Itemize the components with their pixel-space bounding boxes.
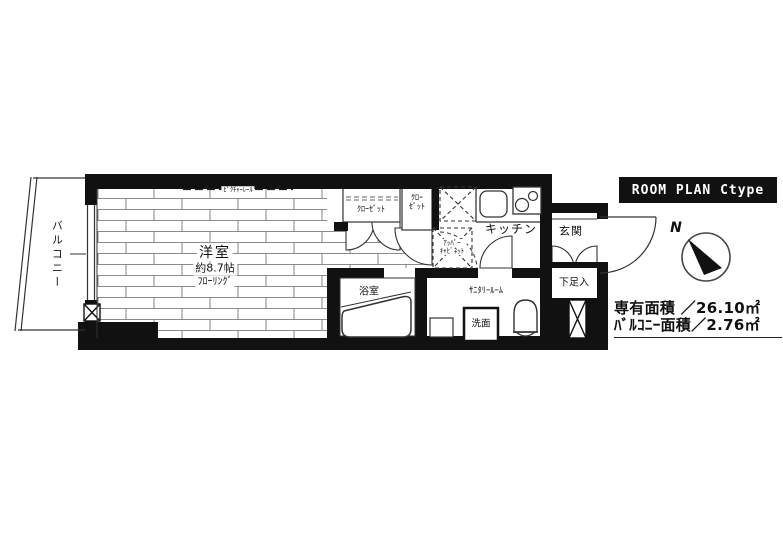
upper-cabinet-line1: ｱｯﾊﾟｰ — [440, 239, 465, 247]
upper-cabinet-line2: ｷｬﾋﾞﾈｯﾄ — [440, 247, 465, 255]
entrance-door-arc — [600, 217, 656, 273]
sanitary-room-label: ｻﾆﾀﾘｰﾙｰﾑ — [469, 287, 503, 297]
closet-2-line2: ｾﾞｯﾄ — [409, 202, 425, 211]
compass-north-label: N — [670, 220, 682, 236]
western-room-name: 洋室 — [197, 245, 233, 261]
area-summary: 専有面積 ／26.10㎡ ﾊﾞﾙｺﾆｰ面積／2.76㎡ — [614, 300, 782, 338]
upper-cabinet-label: ｱｯﾊﾟｰ ｷｬﾋﾞﾈｯﾄ — [438, 239, 467, 255]
sink-icon — [480, 191, 507, 217]
closet-2-line1: ｸﾛｰ — [409, 193, 425, 202]
closet-1-label: ｸﾛｰｾﾞｯﾄ — [357, 204, 385, 213]
compass-icon — [682, 233, 730, 281]
kitchen-label: キッチン — [485, 223, 537, 237]
toilet-icon — [513, 300, 538, 336]
floor-plan-drawing — [0, 0, 783, 550]
exclusive-area-text: 専有面積 ／26.10㎡ — [614, 300, 782, 317]
western-room-flooring: ﾌﾛｰﾘﾝｸﾞ — [196, 276, 235, 288]
bathroom-label: 浴室 — [357, 286, 381, 298]
balcony-label: バルコニー — [50, 220, 63, 290]
picture-rail-label: ﾋﾟｸﾁｬｰﾚｰﾙ — [221, 186, 254, 193]
washing-machine-pan — [430, 318, 453, 337]
floor-plan-page: バルコニー 洋室 約8.7帖 ﾌﾛｰﾘﾝｸﾞ ﾋﾟｸﾁｬｰﾚｰﾙ ｸﾛｰｾﾞｯﾄ… — [0, 0, 783, 550]
shoe-cabinet-label: 下足入 — [559, 277, 589, 289]
kitchen-fixtures — [476, 187, 541, 222]
room-plan-header: ROOM PLAN Ctype — [619, 177, 777, 203]
entrance-label: 玄関 — [559, 226, 583, 239]
balcony-window — [70, 205, 95, 300]
western-room-size: 約8.7帖 — [193, 263, 237, 276]
balcony-area-text: ﾊﾞﾙｺﾆｰ面積／2.76㎡ — [614, 317, 782, 334]
washbasin-label: 洗面 — [471, 320, 490, 331]
closet-2-label: ｸﾛｰ ｾﾞｯﾄ — [409, 193, 425, 211]
sanitary-door-arc — [480, 236, 512, 268]
refrigerator-space — [440, 187, 476, 221]
